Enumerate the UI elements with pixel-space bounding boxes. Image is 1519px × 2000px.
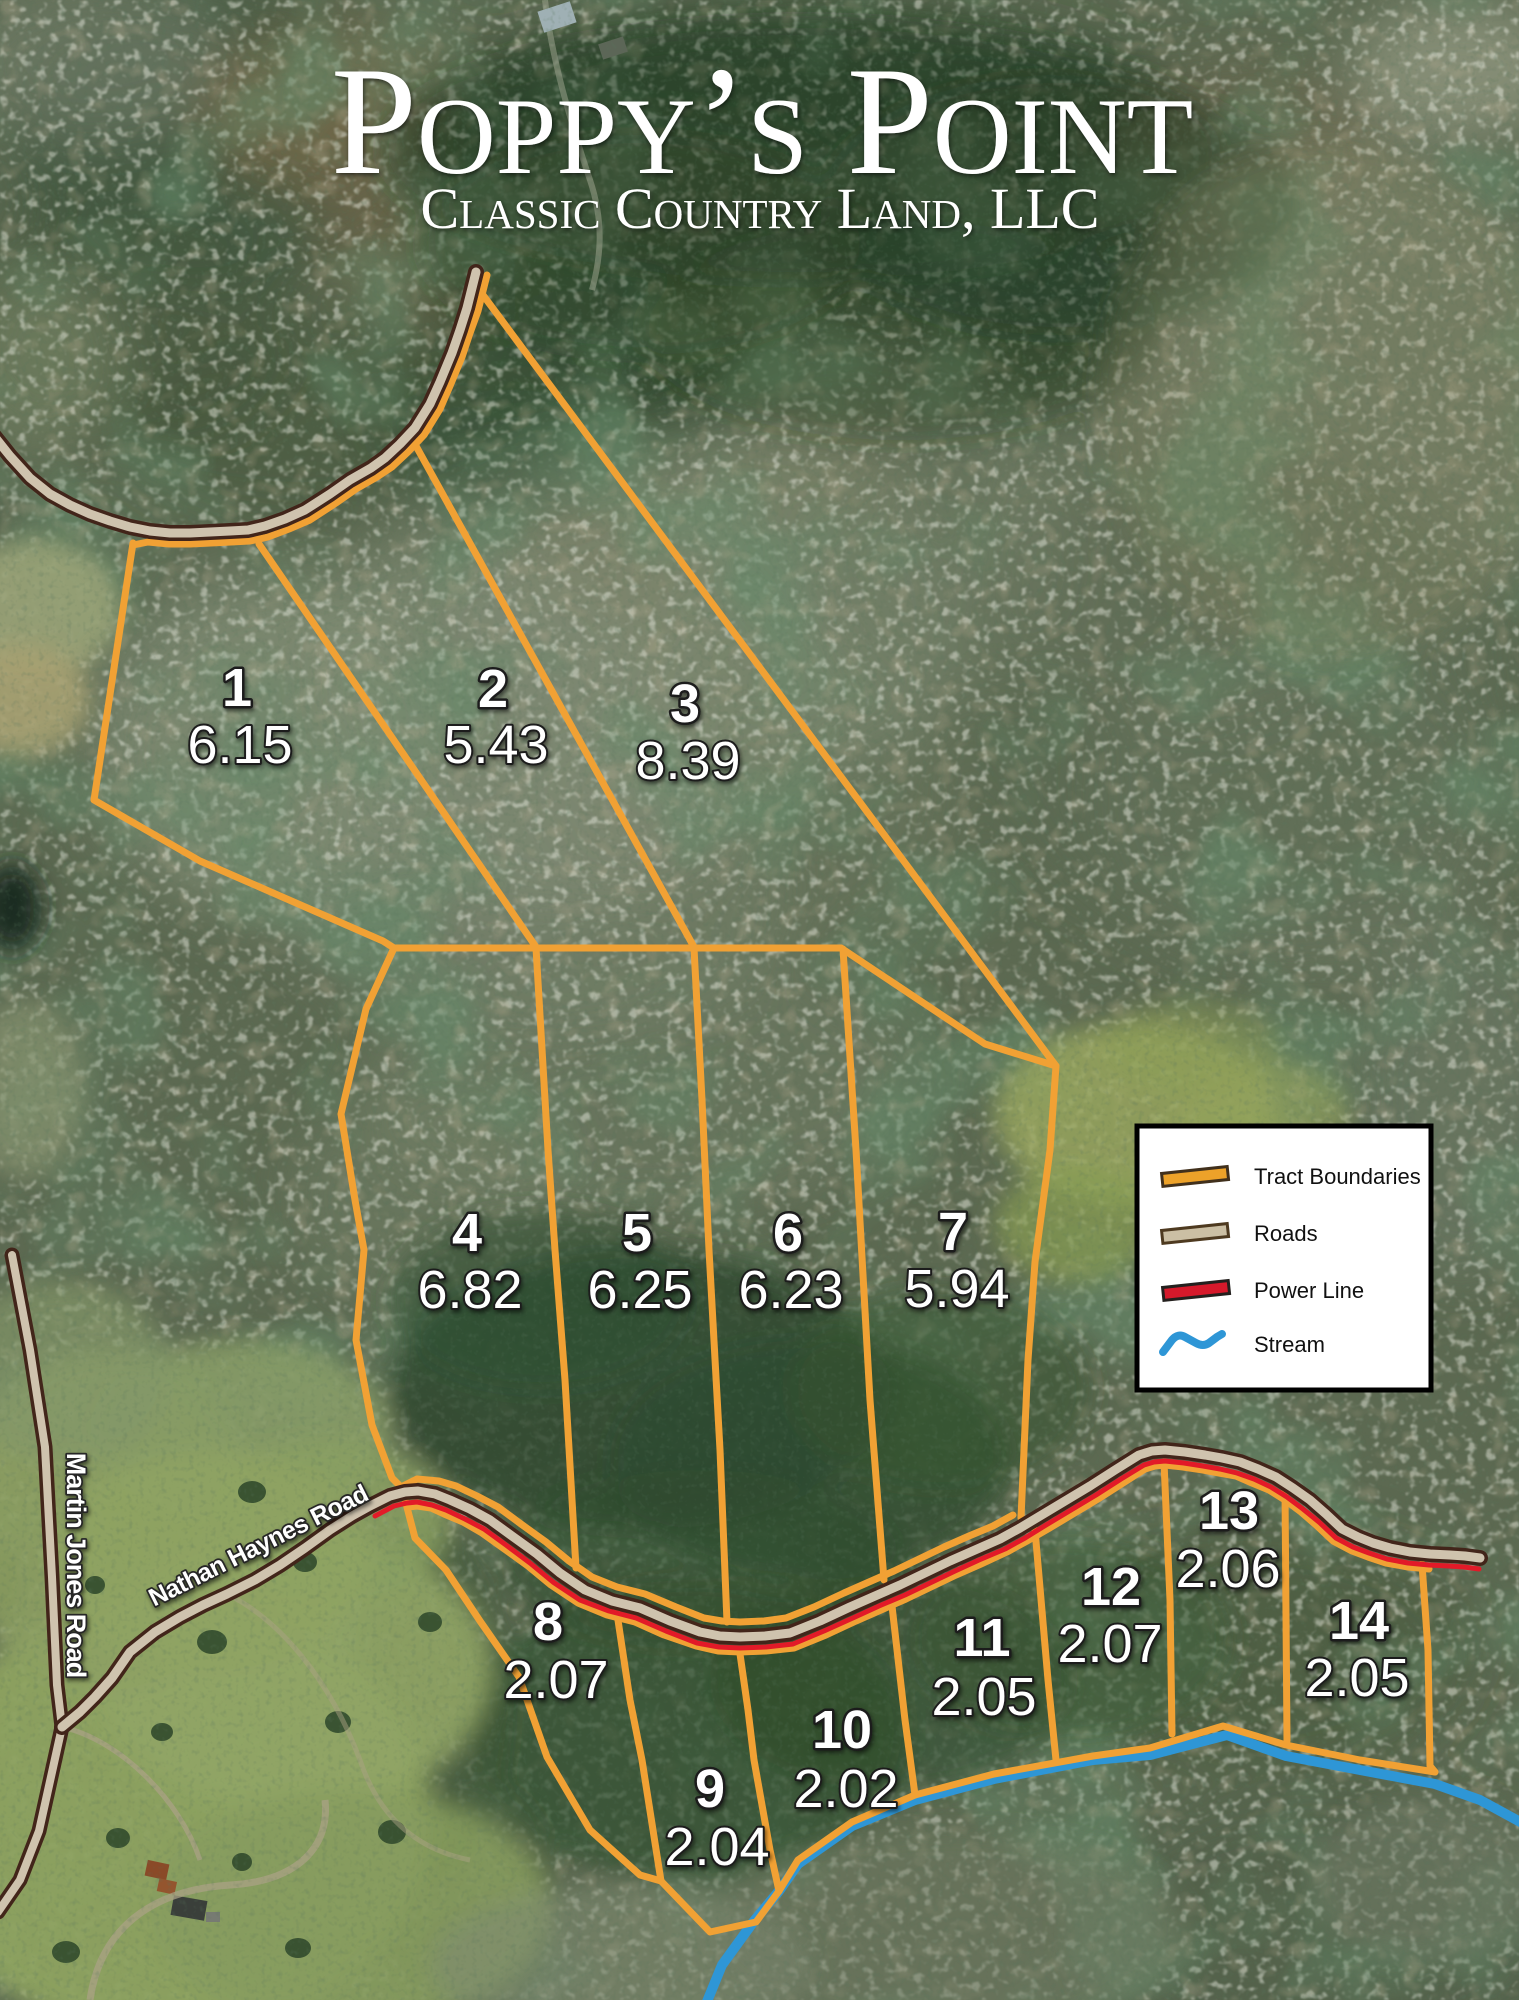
svg-text:6.23: 6.23 (738, 1260, 843, 1320)
svg-text:8: 8 (533, 1592, 563, 1652)
svg-text:5.94: 5.94 (904, 1259, 1009, 1319)
svg-text:11: 11 (953, 1608, 1010, 1668)
svg-text:Stream: Stream (1254, 1332, 1325, 1357)
svg-text:Martin Jones Road: Martin Jones Road (61, 1453, 91, 1678)
svg-text:2: 2 (478, 659, 508, 719)
svg-text:2.04: 2.04 (664, 1817, 769, 1877)
svg-text:2.07: 2.07 (503, 1650, 608, 1710)
svg-text:6.25: 6.25 (587, 1260, 692, 1320)
svg-text:13: 13 (1199, 1481, 1259, 1541)
svg-text:8.39: 8.39 (635, 731, 740, 791)
svg-text:10: 10 (812, 1700, 872, 1760)
svg-text:2.05: 2.05 (1304, 1648, 1409, 1708)
svg-text:5: 5 (622, 1203, 652, 1263)
svg-text:14: 14 (1329, 1591, 1389, 1651)
svg-text:5.43: 5.43 (443, 715, 548, 775)
svg-text:2.05: 2.05 (931, 1667, 1036, 1727)
svg-text:2.07: 2.07 (1057, 1614, 1162, 1674)
svg-text:7: 7 (938, 1202, 968, 1262)
svg-text:2.02: 2.02 (793, 1759, 898, 1819)
svg-text:9: 9 (695, 1759, 725, 1819)
svg-text:2.06: 2.06 (1175, 1539, 1280, 1599)
svg-text:Tract Boundaries: Tract Boundaries (1254, 1164, 1421, 1189)
svg-text:6: 6 (773, 1203, 803, 1263)
svg-text:3: 3 (670, 674, 700, 734)
svg-text:Classic Country Land, LLC: Classic Country Land, LLC (421, 176, 1100, 241)
svg-text:6.15: 6.15 (187, 715, 292, 775)
svg-text:6.82: 6.82 (417, 1260, 522, 1320)
svg-text:12: 12 (1081, 1557, 1141, 1617)
svg-text:Power Line: Power Line (1254, 1278, 1364, 1303)
svg-text:4: 4 (452, 1203, 482, 1263)
svg-text:Roads: Roads (1254, 1221, 1318, 1246)
svg-text:1: 1 (222, 658, 252, 718)
